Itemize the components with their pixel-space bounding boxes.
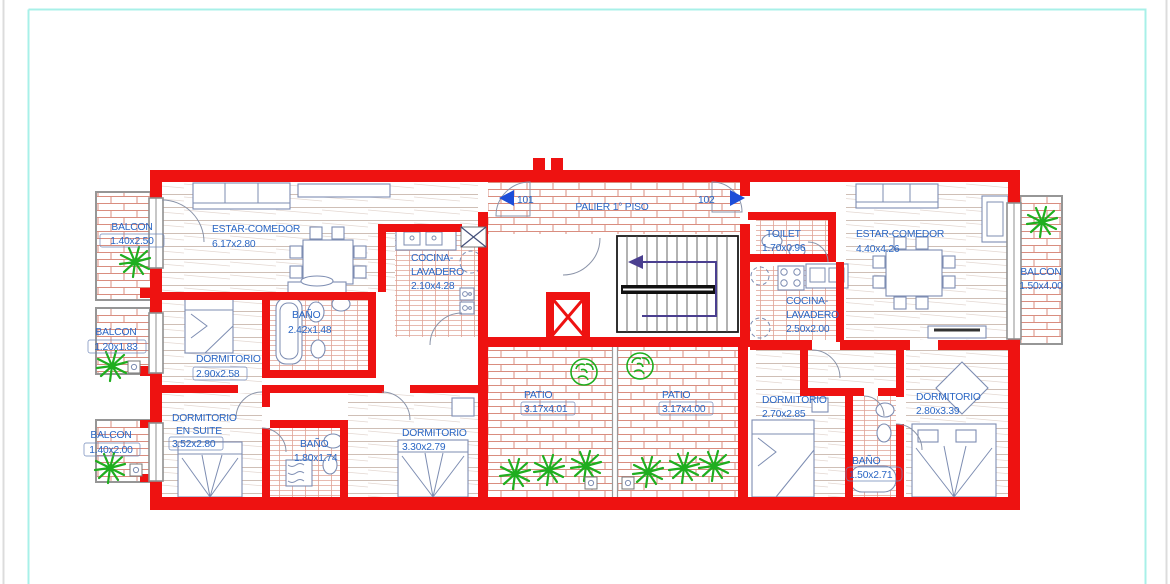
- svg-text:LAVADERO: LAVADERO: [411, 267, 464, 278]
- svg-text:BALCON: BALCON: [111, 222, 152, 233]
- svg-text:BAÑO: BAÑO: [852, 454, 881, 467]
- svg-text:ESTAR-COMEDOR: ESTAR-COMEDOR: [212, 224, 300, 235]
- svg-text:BAÑO: BAÑO: [292, 308, 321, 321]
- label-unit-101: 101: [517, 195, 534, 206]
- svg-text:TOILET: TOILET: [766, 229, 802, 240]
- svg-text:1.40x2.50: 1.40x2.50: [110, 236, 154, 247]
- staircase: [617, 236, 738, 332]
- sofa-right: [856, 184, 938, 208]
- svg-text:BALCON: BALCON: [90, 430, 131, 441]
- tv-unit-right: [982, 196, 1008, 242]
- svg-text:2.10x4.28: 2.10x4.28: [411, 281, 455, 292]
- svg-text:1.50x4.00: 1.50x4.00: [1019, 281, 1063, 292]
- svg-text:BAÑO: BAÑO: [300, 437, 329, 450]
- svg-text:2.42x1.48: 2.42x1.48: [288, 325, 332, 336]
- svg-text:COCINA-: COCINA-: [786, 296, 828, 307]
- label-unit-102: 102: [698, 195, 715, 206]
- sideboard-right: [928, 326, 986, 338]
- bed-dorm1: [185, 298, 233, 353]
- svg-text:1.40x2.00: 1.40x2.00: [89, 445, 133, 456]
- svg-text:BALCON: BALCON: [95, 327, 136, 338]
- svg-text:1.20x1.83: 1.20x1.83: [94, 342, 138, 353]
- svg-text:EN SUITE: EN SUITE: [176, 426, 222, 437]
- elevator-x: [551, 297, 585, 337]
- svg-text:4.40x4.26: 4.40x4.26: [856, 244, 900, 255]
- svg-text:3.17x4.01: 3.17x4.01: [524, 404, 568, 415]
- cabinet-left: [298, 184, 390, 197]
- svg-text:DORMITORIO: DORMITORIO: [762, 395, 827, 406]
- svg-text:3.30x2.79: 3.30x2.79: [402, 442, 446, 453]
- svg-text:2.50x2.00: 2.50x2.00: [786, 324, 830, 335]
- svg-text:LAVADERO: LAVADERO: [786, 310, 839, 321]
- svg-text:3.52x2.80: 3.52x2.80: [172, 439, 216, 450]
- svg-text:1.50x2.71: 1.50x2.71: [849, 470, 893, 481]
- unit-102-number: 102: [698, 195, 715, 206]
- sofa-left: [193, 183, 290, 209]
- svg-text:DORMITORIO: DORMITORIO: [196, 354, 261, 365]
- svg-text:PATIO: PATIO: [662, 390, 691, 401]
- svg-text:1.80x1.74: 1.80x1.74: [294, 453, 338, 464]
- svg-text:3.17x4.00: 3.17x4.00: [662, 404, 706, 415]
- unit-101-number: 101: [517, 195, 534, 206]
- floor-plan-canvas: 101 102 PALIER 1° PISO BALCON 1.40x2.50 …: [0, 0, 1170, 584]
- svg-text:2.80x3.39: 2.80x3.39: [916, 406, 960, 417]
- svg-text:2.70x2.85: 2.70x2.85: [762, 409, 806, 420]
- svg-text:DORMITORIO: DORMITORIO: [916, 392, 981, 403]
- svg-text:2.90x2.58: 2.90x2.58: [196, 369, 240, 380]
- svg-text:6.17x2.80: 6.17x2.80: [212, 239, 256, 250]
- svg-text:PATIO: PATIO: [524, 390, 553, 401]
- floor-plan-screenshot: 101 102 PALIER 1° PISO BALCON 1.40x2.50 …: [0, 0, 1170, 584]
- svg-text:COCINA-: COCINA-: [411, 253, 453, 264]
- shaft-x-left: [461, 227, 486, 247]
- palier-label: PALIER 1° PISO: [575, 202, 648, 213]
- svg-text:DORMITORIO: DORMITORIO: [402, 428, 467, 439]
- svg-text:ESTAR-COMEDOR: ESTAR-COMEDOR: [856, 229, 944, 240]
- svg-text:DORMITORIO: DORMITORIO: [172, 413, 237, 424]
- svg-text:BALCON: BALCON: [1020, 267, 1061, 278]
- svg-text:1.70x0.96: 1.70x0.96: [762, 243, 806, 254]
